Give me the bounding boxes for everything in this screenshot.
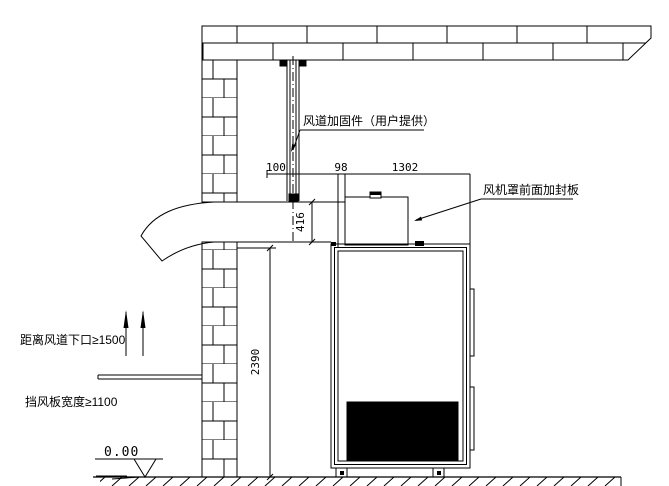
- elevation-value: 0.00: [104, 445, 139, 460]
- left-wall-upper: [202, 60, 237, 202]
- airflow-arrows: [124, 310, 146, 356]
- unit-foot-right-bolt: [437, 471, 441, 475]
- main-unit: [331, 241, 474, 477]
- installation-drawing: 100 98 1302 416 2390 风道加固件（用户提供） 风机罩前面加封…: [0, 0, 669, 486]
- duct-elbow: [141, 202, 345, 261]
- unit-foot-left-bolt: [340, 471, 344, 475]
- fan-hood-box: [345, 192, 408, 245]
- up-arrow-icon: [124, 310, 129, 328]
- wind-baffle-width-note: 挡风板宽度≥1100: [25, 394, 118, 409]
- elevation-marker: [95, 459, 163, 479]
- wind-baffle-plate: [98, 375, 202, 379]
- top-mount-tab: [415, 241, 424, 246]
- right-side-strip-lower: [470, 387, 474, 450]
- dim-100: 100: [266, 161, 286, 174]
- left-wall-lower: [202, 242, 237, 477]
- left-wall: [202, 60, 237, 477]
- black-display-panel: [347, 402, 458, 461]
- duct-reinforcement-label: 风道加固件（用户提供）: [303, 113, 435, 128]
- top-left-tab: [331, 242, 336, 246]
- dim-1302: 1302: [392, 161, 419, 174]
- duct-height-dimension: [309, 199, 315, 245]
- pipe-flange-right: [299, 60, 306, 66]
- fan-hood-panel-leader: [416, 199, 481, 220]
- duct-outlet-distance-note: 距离风道下口≥1500: [20, 332, 126, 347]
- dim-98: 98: [334, 161, 347, 174]
- ground-hatch: [100, 477, 615, 486]
- fan-hood-panel-label: 风机罩前面加封板: [483, 182, 579, 197]
- leader-arrowhead-icon: [414, 217, 422, 221]
- elevation-triangle-icon: [134, 459, 156, 477]
- dim-2390: 2390: [249, 349, 262, 376]
- right-side-strip-upper: [470, 289, 474, 356]
- pipe-bottom-flange: [289, 194, 298, 201]
- hood-top-tab-cap: [370, 192, 381, 195]
- pipe-flange-left: [280, 60, 287, 66]
- dim-416: 416: [294, 212, 307, 232]
- fan-hood-panel-callout: 风机罩前面加封板: [414, 182, 579, 221]
- ceiling-slab: [202, 26, 651, 60]
- drawing-svg: 100 98 1302 416 2390 风道加固件（用户提供） 风机罩前面加封…: [0, 0, 669, 486]
- up-arrow-icon: [141, 310, 146, 328]
- duct-reinforcement-callout: 风道加固件（用户提供）: [291, 113, 435, 152]
- ground-line: [93, 477, 621, 486]
